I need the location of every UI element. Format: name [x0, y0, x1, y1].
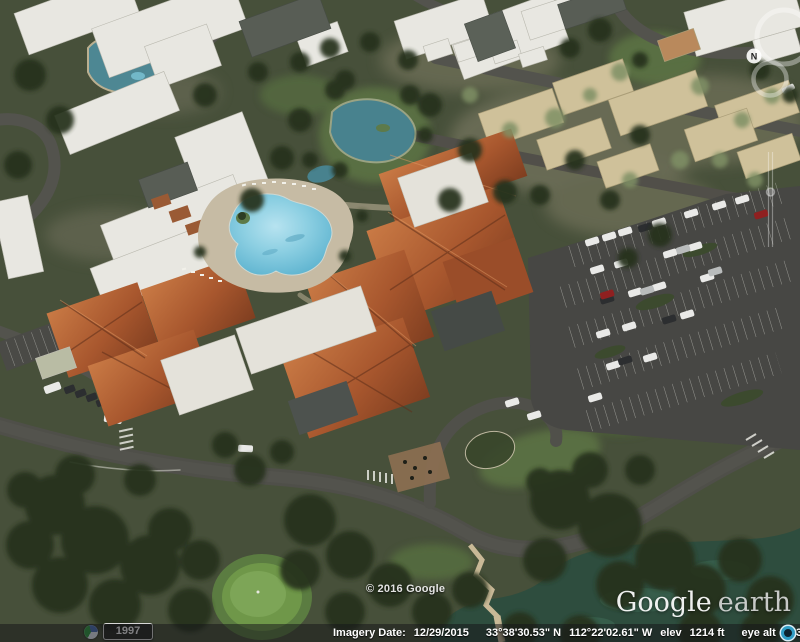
elev-label: elev	[660, 627, 681, 639]
watermark-earth: earth	[718, 587, 791, 618]
zoom-slider-handle[interactable]	[767, 188, 775, 196]
google-earth-window: N © 2016 Google Googleearth 1997 Imagery…	[0, 0, 800, 642]
earth-viewport[interactable]: N © 2016 Google Googleearth 1997 Imagery…	[0, 0, 800, 642]
eye-alt-label: eye alt	[742, 627, 776, 639]
compass-north-label: N	[751, 52, 758, 62]
satellite-imagery	[0, 0, 800, 642]
move-ring[interactable]	[754, 63, 787, 96]
navigation-controls: N	[700, 0, 800, 270]
longitude-value: 112°22'02.61" W	[569, 627, 652, 639]
look-ring[interactable]	[757, 10, 800, 64]
watermark-google: Google	[616, 587, 712, 618]
google-earth-watermark: Googleearth	[616, 589, 791, 616]
streaming-indicator-icon	[781, 626, 795, 640]
copyright-text: © 2016 Google	[366, 583, 445, 595]
compass-north-button[interactable]: N	[747, 49, 762, 64]
status-bar: Imagery Date: 12/29/2015 33°38'30.53" N …	[0, 624, 800, 642]
imagery-date-value: 12/29/2015	[414, 627, 469, 639]
elevation-value: 1214 ft	[690, 627, 725, 639]
zoom-slider[interactable]	[767, 152, 775, 247]
status-bar-readout: Imagery Date: 12/29/2015 33°38'30.53" N …	[333, 624, 800, 642]
imagery-date-label: Imagery Date:	[333, 627, 406, 639]
latitude-value: 33°38'30.53" N	[486, 627, 561, 639]
